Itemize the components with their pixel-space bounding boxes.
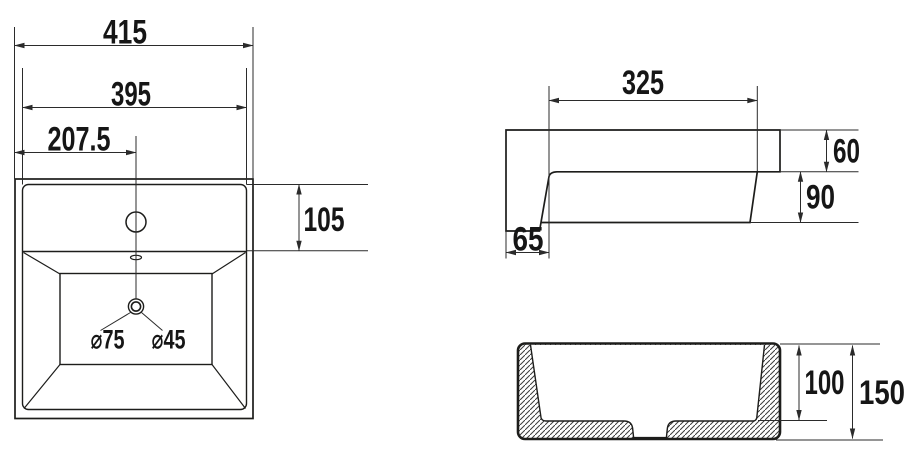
drain-hole-inner: [131, 302, 140, 311]
drawing-canvas: ⌀75 ⌀45 415 395 207.5 105 325 60 90: [0, 0, 905, 458]
side-bowl-underside: [541, 172, 757, 223]
dim-drain-75: ⌀75: [91, 325, 125, 355]
dim-drain-45: ⌀45: [152, 325, 186, 355]
dim-rim-height: 60: [833, 133, 860, 171]
side-profile-outline: [506, 130, 780, 231]
dim-overall-height: 150: [859, 374, 905, 412]
dim-center-offset: 207.5: [48, 121, 111, 159]
dim-deck-depth: 105: [304, 201, 345, 239]
top-view: ⌀75 ⌀45 415 395 207.5 105: [15, 14, 369, 419]
dim-bowl-length: 325: [622, 64, 664, 102]
dim-overall-width: 415: [103, 14, 147, 52]
side-view: 325 60 90 65: [506, 64, 860, 259]
technical-drawing: ⌀75 ⌀45 415 395 207.5 105 325 60 90: [0, 0, 905, 458]
top-view-inner-rim: [23, 185, 247, 410]
dim-back-offset: 65: [513, 221, 544, 259]
section-ceramic-hatching: [518, 344, 780, 440]
section-view: 100 150: [518, 344, 905, 441]
dim-bowl-height: 90: [806, 179, 835, 217]
dim-inner-depth: 100: [805, 364, 845, 402]
dim-inner-width: 395: [111, 76, 151, 114]
